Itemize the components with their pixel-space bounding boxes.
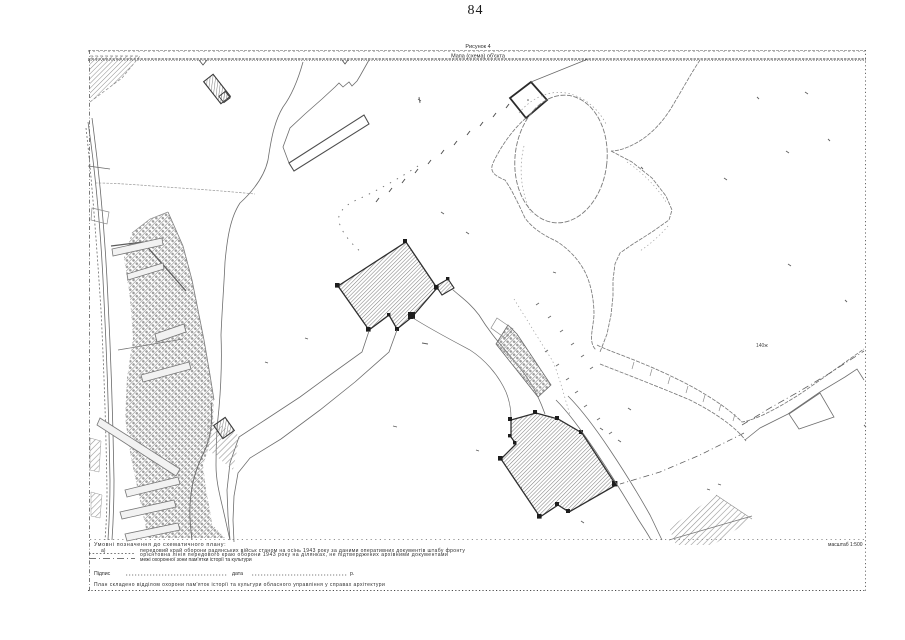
svg-text:План складено відділом охорони: План складено відділом охорони пам'яток … bbox=[94, 582, 385, 588]
svg-text:межі охоронної зони пам'ятки і: межі охоронної зони пам'ятки історії та … bbox=[140, 557, 252, 563]
svg-text:дата: дата bbox=[232, 571, 243, 577]
svg-text:140ж: 140ж bbox=[756, 343, 768, 349]
svg-text:Рисунок 4: Рисунок 4 bbox=[465, 44, 490, 50]
svg-text:масштаб 1:500: масштаб 1:500 bbox=[828, 542, 863, 548]
svg-text:а): а) bbox=[101, 548, 106, 554]
svg-text:р.: р. bbox=[350, 571, 354, 577]
svg-text:Підпис: Підпис bbox=[94, 571, 111, 577]
